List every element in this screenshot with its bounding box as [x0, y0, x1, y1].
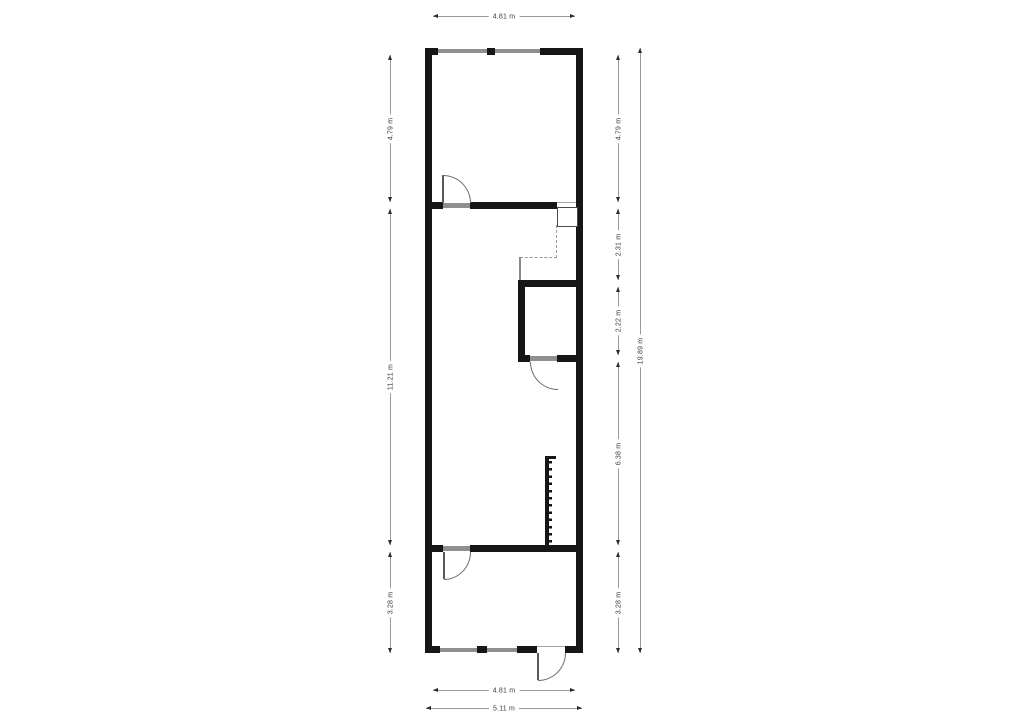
- dim-arrow-up-icon: [616, 552, 620, 557]
- dim-arrow-right-icon: [570, 14, 575, 18]
- dimension-label: 4.79 m: [388, 114, 395, 143]
- thin-partition-line: [519, 257, 521, 281]
- dim-arrow-left-icon: [433, 14, 438, 18]
- dimension-right-seg5: 3.28 m: [618, 552, 619, 653]
- dimension-right-seg4: 6.38 m: [618, 362, 619, 545]
- door3-threshold: [443, 546, 470, 551]
- exterior-wall-bottom-mullion: [477, 646, 487, 653]
- dim-arrow-down-icon: [616, 275, 620, 280]
- exterior-wall-top-segment: [425, 48, 438, 55]
- window-bottom-left: [440, 648, 477, 652]
- dimension-top-width: 4.81 m: [433, 16, 575, 17]
- dim-arrow-down-icon: [616, 350, 620, 355]
- dimension-left-room3: 3.28 m: [390, 552, 391, 653]
- closet-wall-bottom-segment: [557, 355, 576, 362]
- stair-railing-cap: [545, 456, 556, 459]
- entry-door-swing-arc: [538, 653, 566, 681]
- dim-arrow-up-icon: [638, 48, 642, 53]
- door2-threshold: [530, 356, 557, 361]
- entry-door-opening-line: [537, 646, 565, 647]
- interior-wall-divider1-segment: [470, 202, 557, 209]
- dimension-label: 4.81 m: [489, 14, 520, 21]
- dimension-label: 19.89 m: [638, 334, 645, 367]
- dimension-label: 2.22 m: [616, 307, 623, 336]
- dimension-bottom-width-outer: 5.11 m: [426, 708, 582, 709]
- dimension-bottom-width-inner: 4.81 m: [433, 690, 575, 691]
- window-top-right: [495, 49, 540, 53]
- exterior-wall-right: [576, 48, 583, 653]
- dim-arrow-left-icon: [433, 688, 438, 692]
- dim-arrow-down-icon: [388, 197, 392, 202]
- dimension-label: 11.21 m: [388, 361, 395, 393]
- dim-arrow-up-icon: [388, 209, 392, 214]
- dim-arrow-down-icon: [616, 540, 620, 545]
- exterior-wall-top-segment: [540, 48, 583, 55]
- dim-arrow-down-icon: [388, 540, 392, 545]
- dimension-label: 3.28 m: [616, 588, 623, 617]
- dimension-right-seg3: 2.22 m: [618, 287, 619, 355]
- dim-arrow-down-icon: [616, 197, 620, 202]
- dimension-label: 6.38 m: [616, 439, 623, 468]
- floorplan-canvas: 4.81 m 4.81 m 5.11 m 4.79 m 11.21 m 3.28…: [0, 0, 1024, 724]
- exterior-wall-bottom-segment: [425, 646, 440, 653]
- interior-wall-divider2-segment: [432, 545, 443, 552]
- dim-arrow-up-icon: [388, 55, 392, 60]
- dim-arrow-right-icon: [570, 688, 575, 692]
- dimension-label: 4.79 m: [616, 114, 623, 143]
- closet-wall-left: [518, 280, 525, 362]
- dashed-overhead-line-horizontal: [520, 257, 557, 258]
- dim-arrow-down-icon: [616, 648, 620, 653]
- dim-arrow-up-icon: [616, 362, 620, 367]
- dimension-right-total: 19.89 m: [640, 48, 641, 653]
- dim-arrow-up-icon: [616, 55, 620, 60]
- dim-arrow-up-icon: [616, 209, 620, 214]
- dimension-right-seg1: 4.79 m: [618, 55, 619, 202]
- dimension-left-room2: 11.21 m: [390, 209, 391, 545]
- dashed-overhead-line-vertical: [556, 225, 557, 258]
- dimension-left-room1: 4.79 m: [390, 55, 391, 202]
- window-bottom-right: [487, 648, 517, 652]
- door2-swing-arc: [530, 362, 558, 390]
- door3-swing-arc: [444, 552, 471, 580]
- dimension-right-seg2: 2.31 m: [618, 209, 619, 280]
- door1-threshold: [443, 203, 470, 208]
- exterior-wall-top-mullion: [487, 48, 495, 55]
- door1-swing-arc: [443, 175, 471, 203]
- interior-wall-divider1-segment: [432, 202, 443, 209]
- interior-wall-divider2-segment: [470, 545, 576, 552]
- dim-arrow-left-icon: [426, 706, 431, 710]
- stair-railing-ticks: [549, 461, 552, 547]
- sliding-door-panel: [557, 207, 578, 227]
- closet-wall-bottom-segment: [518, 355, 530, 362]
- divider1-opening-line: [557, 202, 576, 203]
- exterior-wall-bottom-segment: [517, 646, 537, 653]
- dim-arrow-down-icon: [388, 648, 392, 653]
- exterior-wall-left: [425, 48, 432, 653]
- window-top-left: [438, 49, 487, 53]
- dimension-label: 3.28 m: [388, 588, 395, 617]
- dim-arrow-down-icon: [638, 648, 642, 653]
- dim-arrow-up-icon: [388, 552, 392, 557]
- dim-arrow-right-icon: [577, 706, 582, 710]
- dimension-label: 5.11 m: [489, 706, 519, 713]
- exterior-wall-bottom-segment: [565, 646, 583, 653]
- dimension-label: 2.31 m: [616, 230, 623, 259]
- dim-arrow-up-icon: [616, 287, 620, 292]
- dimension-label: 4.81 m: [489, 688, 520, 695]
- closet-wall-top: [518, 280, 576, 287]
